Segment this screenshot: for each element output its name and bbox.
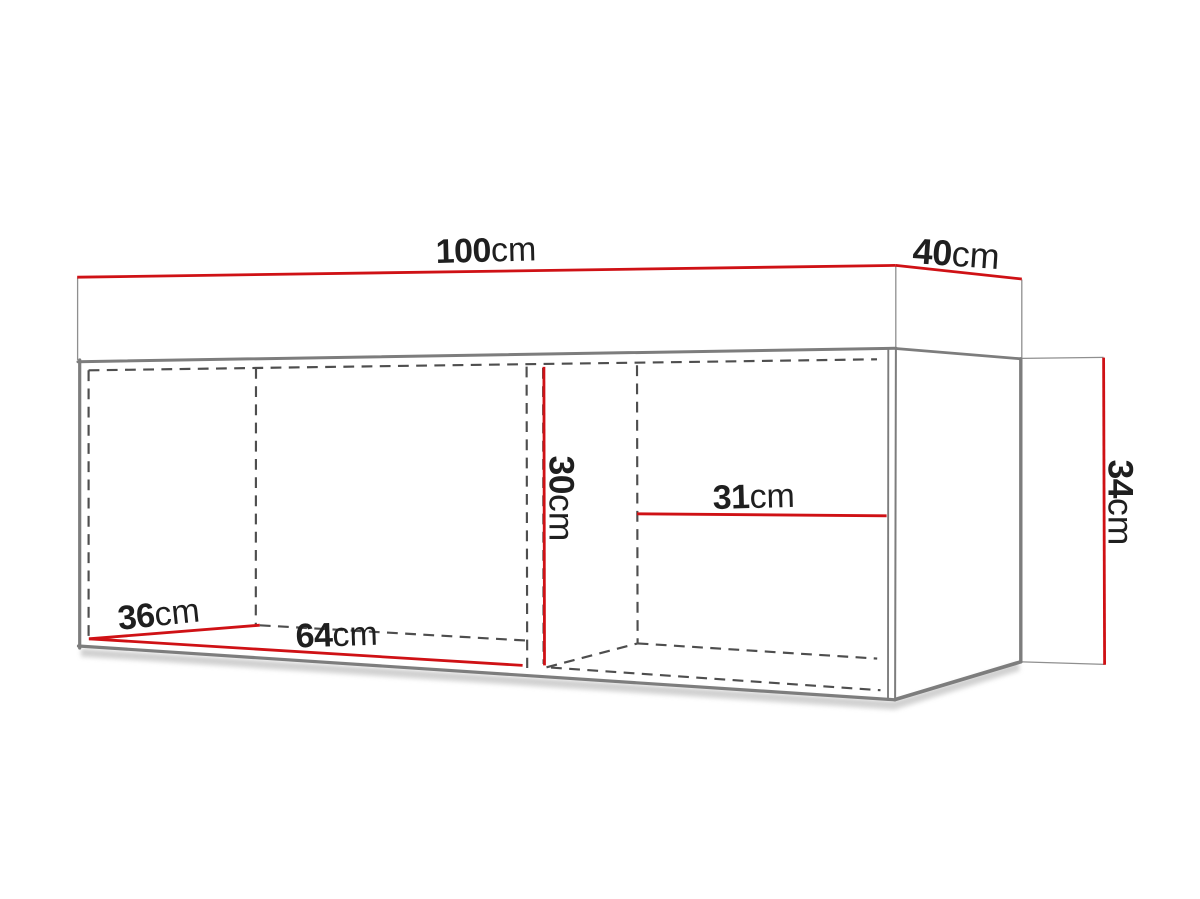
svg-text:40cm: 40cm <box>911 230 1001 277</box>
svg-text:100cm: 100cm <box>435 230 537 271</box>
svg-text:64cm: 64cm <box>295 615 378 656</box>
svg-text:30cm: 30cm <box>542 456 582 542</box>
svg-text:34cm: 34cm <box>1101 460 1141 546</box>
svg-text:31cm: 31cm <box>712 477 795 517</box>
